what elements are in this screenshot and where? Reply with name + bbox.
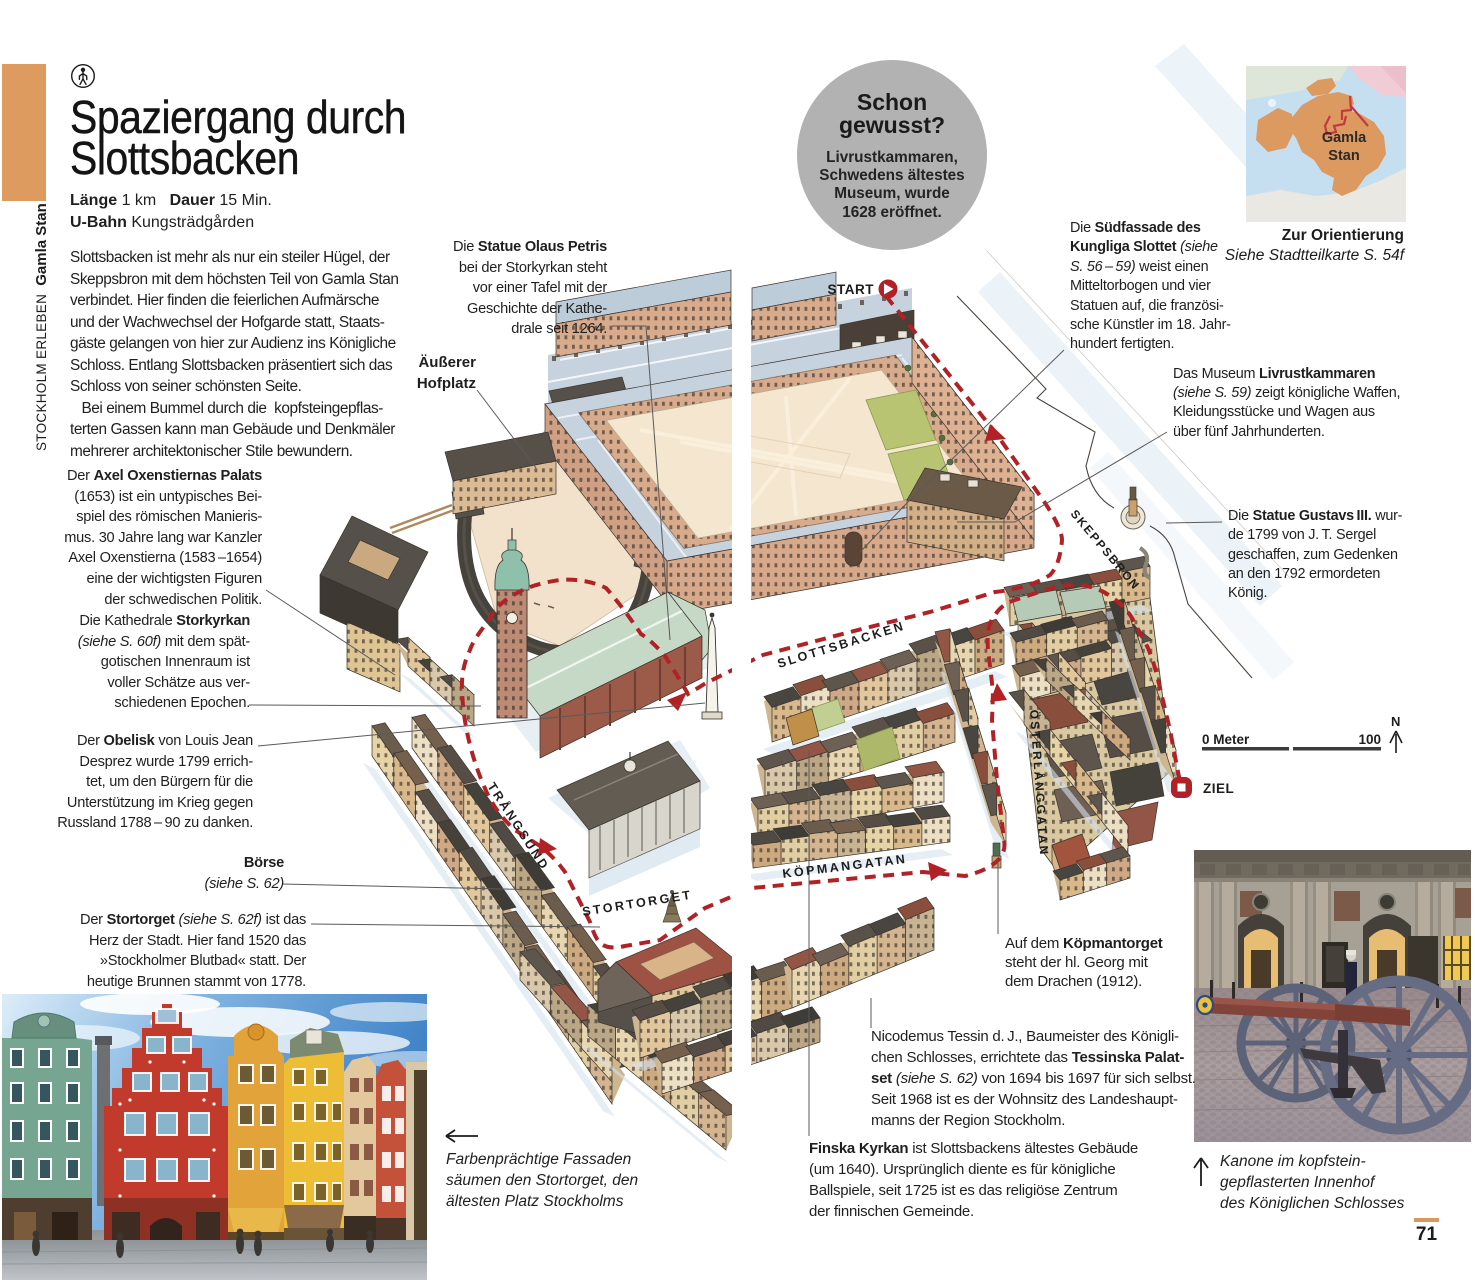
- svg-text:START: START: [828, 282, 875, 297]
- svg-text:100: 100: [1358, 732, 1381, 747]
- svg-text:0 Meter: 0 Meter: [1202, 732, 1250, 747]
- svg-text:Stan: Stan: [1328, 148, 1359, 164]
- svg-text:N: N: [1391, 714, 1400, 729]
- svg-text:Gamla: Gamla: [1322, 130, 1367, 146]
- svg-text:ZIEL: ZIEL: [1203, 781, 1234, 796]
